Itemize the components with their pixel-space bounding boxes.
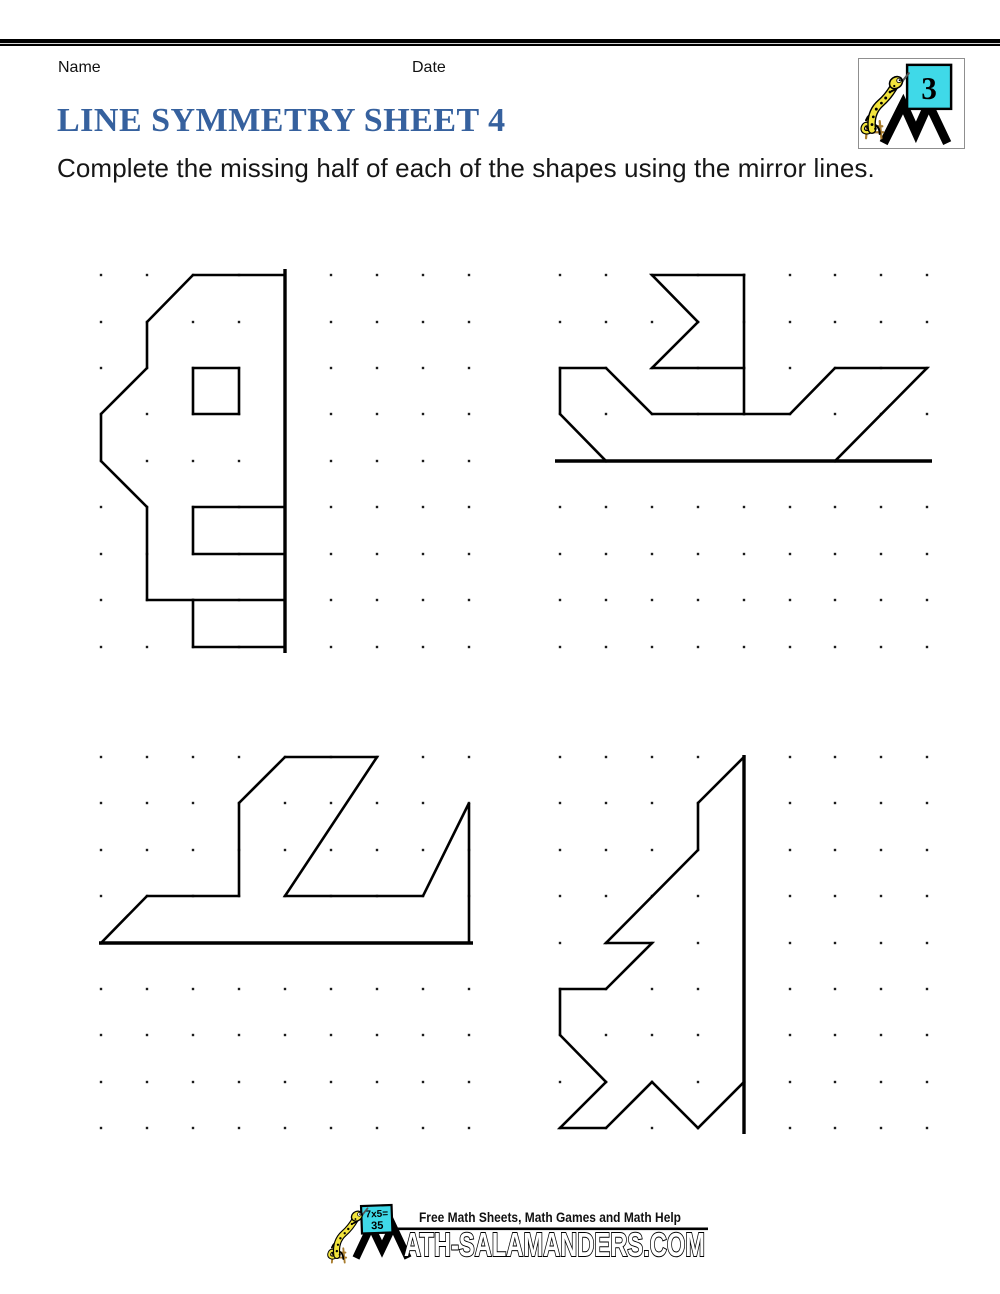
grid-dot [146, 460, 148, 462]
grid-dot [880, 895, 882, 897]
grid-dot [376, 802, 378, 804]
grid-dot [789, 1034, 791, 1036]
grid-dot [376, 553, 378, 555]
grid-dot [880, 599, 882, 601]
grid-dot [284, 802, 286, 804]
grid-dot [789, 367, 791, 369]
grid-dot [605, 274, 607, 276]
grid-dot [284, 849, 286, 851]
grid-dot [834, 802, 836, 804]
grid-dot [468, 321, 470, 323]
grid-dot [238, 321, 240, 323]
grid-dot [468, 367, 470, 369]
symmetry-worksheet-canvas [0, 0, 1000, 1294]
grid-dot [422, 367, 424, 369]
grid-dot [697, 988, 699, 990]
grid-dot [238, 988, 240, 990]
grid-dot [376, 321, 378, 323]
grid-dot [330, 460, 332, 462]
grid-dot [192, 1081, 194, 1083]
grid-dot [422, 460, 424, 462]
grid-dot [651, 849, 653, 851]
grid-dot [192, 802, 194, 804]
grid-dot [789, 942, 791, 944]
grid-dot [651, 1034, 653, 1036]
grid-dot [376, 988, 378, 990]
grid-dot [743, 646, 745, 648]
grid-dot [468, 646, 470, 648]
grid-dot [330, 321, 332, 323]
grid-dot [926, 413, 928, 415]
grid-dot [651, 988, 653, 990]
grid-dot [651, 599, 653, 601]
grid-dot [146, 646, 148, 648]
grid-dot [651, 553, 653, 555]
grid-dot [697, 895, 699, 897]
grid-dot [422, 1034, 424, 1036]
grid-dot [468, 1034, 470, 1036]
grid-dot [330, 367, 332, 369]
grid-dot [789, 506, 791, 508]
grid-dot [100, 1034, 102, 1036]
grid-dot [330, 413, 332, 415]
grid-dot [468, 756, 470, 758]
grid-dot [834, 942, 836, 944]
grid-dot [880, 1081, 882, 1083]
grid-dot [926, 321, 928, 323]
grid-dot [834, 756, 836, 758]
grid-dot [330, 1034, 332, 1036]
grid-dot [926, 599, 928, 601]
grid-dot [789, 802, 791, 804]
grid-dot [284, 1127, 286, 1129]
grid-dot [284, 1081, 286, 1083]
grid-dot [192, 988, 194, 990]
grid-dot [880, 756, 882, 758]
shape-outline [560, 757, 744, 1128]
grid-dot [238, 756, 240, 758]
grid-dot [192, 460, 194, 462]
grid-dot [192, 321, 194, 323]
grid-dot [605, 756, 607, 758]
grid-dot [880, 506, 882, 508]
grid-dot [651, 802, 653, 804]
grid-dot [100, 367, 102, 369]
grid-dot [192, 1127, 194, 1129]
grid-dot [651, 506, 653, 508]
grid-dot [146, 1034, 148, 1036]
grid-dot [468, 553, 470, 555]
grid-dot [192, 849, 194, 851]
grid-dot [926, 1034, 928, 1036]
grid-dot [880, 802, 882, 804]
grid-dot [559, 274, 561, 276]
grid-dot [422, 1081, 424, 1083]
grid-dot [605, 321, 607, 323]
grid-dot [605, 646, 607, 648]
grid-dot [926, 1127, 928, 1129]
grid-dot [880, 1127, 882, 1129]
grid-dot [880, 646, 882, 648]
grid-dot [834, 1034, 836, 1036]
grid-dot [422, 1127, 424, 1129]
grid-dot [100, 988, 102, 990]
grid-dot [789, 646, 791, 648]
grid-dot [880, 1034, 882, 1036]
grid-dot [376, 1034, 378, 1036]
grid-dot [376, 274, 378, 276]
grid-dot [559, 849, 561, 851]
grid-dot [605, 553, 607, 555]
grid-dot [146, 756, 148, 758]
grid-dot [789, 1081, 791, 1083]
grid-dot [697, 942, 699, 944]
grid-dot [651, 646, 653, 648]
grid-dot [192, 1034, 194, 1036]
grid-dot [376, 460, 378, 462]
grid-dot [926, 506, 928, 508]
grid-dot [146, 274, 148, 276]
grid-dot [559, 506, 561, 508]
grid-dot [238, 1127, 240, 1129]
grid-dot [468, 1081, 470, 1083]
grid-dot [100, 849, 102, 851]
grid-dot [651, 1127, 653, 1129]
grid-dot [238, 1034, 240, 1036]
grid-dot [468, 460, 470, 462]
grid-dot [651, 756, 653, 758]
grid-dot [743, 553, 745, 555]
grid-dot [834, 895, 836, 897]
grid-dot [100, 802, 102, 804]
grid-dot [422, 646, 424, 648]
grid-dot [926, 1081, 928, 1083]
shape-outline [193, 368, 239, 414]
footer-tagline: Free Math Sheets, Math Games and Math He… [419, 1210, 681, 1225]
grid-dot [834, 274, 836, 276]
grid-dot [146, 413, 148, 415]
grid-dot [880, 942, 882, 944]
grid-dot [100, 274, 102, 276]
grid-dot [834, 1127, 836, 1129]
grid-dot [422, 274, 424, 276]
grid-dot [789, 599, 791, 601]
grid-dot [789, 553, 791, 555]
grid-dot [422, 756, 424, 758]
grid-dot [468, 599, 470, 601]
grid-dot [926, 849, 928, 851]
grid-dot [422, 553, 424, 555]
grid-dot [330, 802, 332, 804]
grid-dot [468, 413, 470, 415]
grid-dot [880, 321, 882, 323]
grid-dot [468, 506, 470, 508]
math-sign-line1: 7x5= [365, 1209, 388, 1221]
grid-dot [422, 802, 424, 804]
grid-dot [284, 988, 286, 990]
footer-wordmark: ATH-SALAMANDERS.COM [404, 1226, 705, 1263]
grid-dot [651, 321, 653, 323]
grid-dot [330, 988, 332, 990]
grid-dot [834, 506, 836, 508]
figure-half-boat [555, 275, 932, 461]
grid-dot [468, 274, 470, 276]
grid-dot [284, 1034, 286, 1036]
grid-dot [789, 274, 791, 276]
grid-dot [789, 321, 791, 323]
grid-dot [559, 599, 561, 601]
grid-dot [697, 553, 699, 555]
grid-dot [330, 1081, 332, 1083]
grid-dot [605, 895, 607, 897]
grid-dot [238, 460, 240, 462]
grid-dot [468, 988, 470, 990]
grid-dot [100, 553, 102, 555]
grid-dot [376, 849, 378, 851]
grid-dot [605, 413, 607, 415]
grid-dot [605, 506, 607, 508]
grid-dot [789, 756, 791, 758]
grid-dot [376, 646, 378, 648]
grid-dot [100, 895, 102, 897]
grid-dot [376, 1127, 378, 1129]
footer-brand: Free Math Sheets, Math Games and Math He… [315, 1195, 725, 1290]
shape-outline [652, 275, 744, 368]
grid-dot [146, 849, 148, 851]
grid-dot [192, 756, 194, 758]
grid-dot [330, 274, 332, 276]
grid-dot [834, 988, 836, 990]
grid-dot [926, 988, 928, 990]
grid-dot [376, 1081, 378, 1083]
grid-dot [422, 849, 424, 851]
grid-dot [100, 756, 102, 758]
grid-dot [146, 802, 148, 804]
grid-dot [422, 413, 424, 415]
grid-dot [146, 988, 148, 990]
grid-dot [422, 988, 424, 990]
grid-dot [330, 506, 332, 508]
grid-dot [880, 274, 882, 276]
grid-dot [376, 413, 378, 415]
grid-dot [697, 599, 699, 601]
grid-dot [559, 942, 561, 944]
grid-dot [376, 599, 378, 601]
grid-dot [238, 1081, 240, 1083]
grid-dot [697, 1034, 699, 1036]
grid-dot [926, 895, 928, 897]
grid-dot [605, 849, 607, 851]
grid-dot [330, 1127, 332, 1129]
grid-dot [559, 553, 561, 555]
grid-dot [880, 553, 882, 555]
grid-dot [422, 506, 424, 508]
grid-dot [376, 506, 378, 508]
grid-dot [100, 646, 102, 648]
grid-dot [789, 849, 791, 851]
grid-dot [926, 646, 928, 648]
grid-dot [834, 849, 836, 851]
grid-dot [834, 599, 836, 601]
grid-dot [743, 506, 745, 508]
shape-outline [193, 600, 285, 647]
grid-dot [330, 646, 332, 648]
grid-dot [834, 1081, 836, 1083]
grid-dot [834, 646, 836, 648]
grid-dot [100, 1127, 102, 1129]
grid-dot [100, 1081, 102, 1083]
grid-dot [926, 942, 928, 944]
grid-dot [330, 553, 332, 555]
worksheet-page: Name Date 3 LINE SYMMETRY SHEET 4 Comple… [0, 0, 1000, 1294]
figure-half-jet [560, 755, 744, 1134]
grid-dot [100, 599, 102, 601]
grid-dot [330, 849, 332, 851]
grid-dot [559, 895, 561, 897]
grid-dot [789, 988, 791, 990]
grid-dot [926, 756, 928, 758]
grid-dot [559, 321, 561, 323]
grid-dot [880, 849, 882, 851]
grid-dot [422, 321, 424, 323]
grid-dot [330, 599, 332, 601]
grid-dot [559, 802, 561, 804]
grid-dot [789, 895, 791, 897]
grid-dot [146, 1081, 148, 1083]
grid-dot [697, 646, 699, 648]
grid-dot [376, 367, 378, 369]
grid-dot [422, 599, 424, 601]
grid-dot [468, 1127, 470, 1129]
grid-dot [834, 553, 836, 555]
grid-dot [697, 756, 699, 758]
grid-dot [743, 599, 745, 601]
grid-dot [100, 506, 102, 508]
grid-dot [926, 274, 928, 276]
grid-dot [834, 321, 836, 323]
grid-dot [559, 756, 561, 758]
shape-outline [193, 507, 285, 554]
grid-dot [100, 321, 102, 323]
grid-dot [605, 802, 607, 804]
grid-dot [834, 413, 836, 415]
grid-dot [926, 802, 928, 804]
grid-dot [697, 1081, 699, 1083]
grid-dot [559, 1081, 561, 1083]
grid-dot [605, 599, 607, 601]
grid-dot [789, 1127, 791, 1129]
grid-dot [880, 988, 882, 990]
grid-dot [926, 553, 928, 555]
grid-dot [559, 646, 561, 648]
grid-dot [146, 1127, 148, 1129]
grid-dot [605, 1034, 607, 1036]
grid-dot [697, 506, 699, 508]
math-sign-line2: 35 [371, 1220, 384, 1232]
